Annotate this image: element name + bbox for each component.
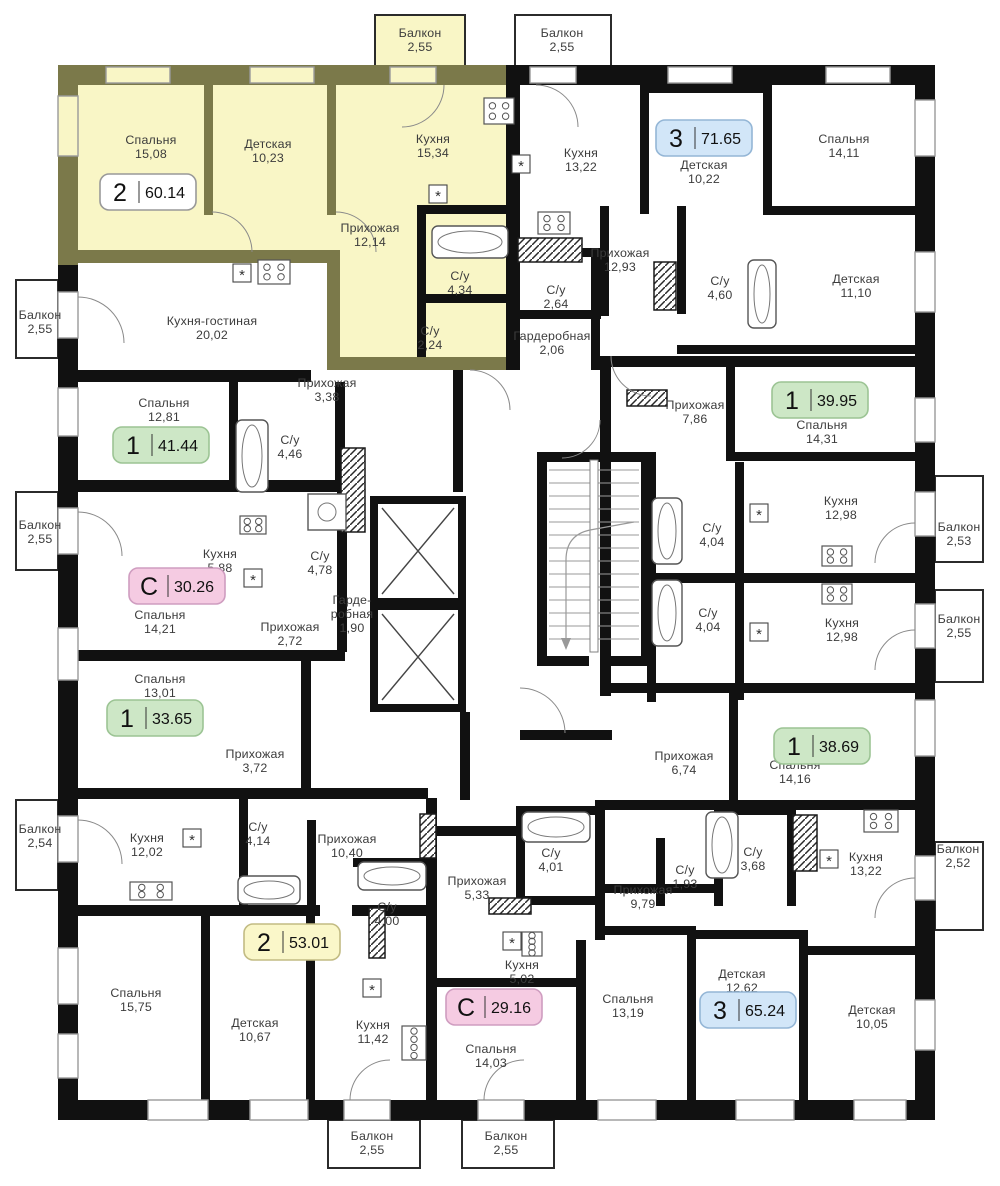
bathtub-icon: [236, 420, 268, 492]
window: [58, 948, 78, 1004]
stove-icon: [864, 810, 898, 832]
window: [106, 67, 170, 83]
door-arc: [350, 1060, 390, 1100]
interior-wall: [517, 310, 601, 319]
room-label: Спальня12,81: [138, 396, 189, 424]
stair-stringer: [590, 460, 598, 652]
washer-spot-icon: *: [369, 982, 375, 999]
interior-wall: [591, 248, 600, 370]
apartment-rooms-count: 1: [126, 432, 140, 460]
window: [915, 492, 935, 536]
interior-wall: [537, 656, 589, 666]
room-label: С/у4,46: [278, 433, 303, 461]
interior-wall: [576, 940, 586, 1102]
apartment-badge-1-39.95[interactable]: 139.95: [772, 382, 868, 418]
highlight-fill: [58, 65, 520, 370]
room-label: Гардеробная2,06: [513, 329, 590, 357]
apartment-badge-3-71.65[interactable]: 371.65: [656, 120, 752, 156]
interior-wall: [436, 826, 520, 836]
room-label: Детская12,62: [718, 967, 765, 995]
apartment-area: 39.95: [817, 393, 857, 410]
interior-wall: [460, 712, 470, 800]
apartment-rooms-count: С: [457, 994, 475, 1022]
washer-spot-icon: *: [518, 158, 524, 175]
apartment-area: 41.44: [158, 438, 198, 455]
door-arc: [78, 297, 124, 343]
room-label: Спальня14,31: [796, 418, 847, 446]
room-label: С/у2,24: [418, 324, 443, 352]
room-label: Прихожая3,72: [225, 747, 284, 775]
interior-wall: [677, 206, 686, 314]
room-label: Кухня12,98: [824, 494, 858, 522]
shaft-hatch: [518, 238, 582, 262]
window: [148, 1100, 208, 1120]
room-label: Спальня13,19: [602, 992, 653, 1020]
room-label: Спальня14,03: [465, 1042, 516, 1070]
interior-wall: [640, 84, 649, 214]
apartment-area: 53.01: [289, 935, 329, 952]
stove-icon: [240, 516, 266, 534]
room-label: Кухня12,02: [130, 831, 164, 859]
room-label: Спальня15,75: [110, 986, 161, 1014]
room-label: С/у4,00: [375, 900, 400, 928]
shaft-hatch: [420, 814, 436, 858]
window: [915, 604, 935, 648]
apartment-area: 38.69: [819, 739, 859, 756]
room-label: С/у4,01: [539, 846, 564, 874]
door-arc: [520, 688, 565, 733]
window: [478, 1100, 524, 1120]
highlight-wall: [327, 250, 340, 370]
room-label: С/у2,64: [544, 283, 569, 311]
interior-wall: [696, 930, 806, 939]
room-label: Прихожая10,40: [317, 832, 376, 860]
room-label: С/у1,93: [673, 863, 698, 891]
interior-wall: [600, 683, 917, 693]
interior-wall: [604, 656, 651, 666]
window: [915, 1000, 935, 1050]
interior-wall: [436, 978, 577, 987]
stove-icon: [822, 546, 852, 566]
door-arc: [875, 630, 915, 670]
room-label: Кухня15,34: [416, 132, 450, 160]
room-label: Кухня11,42: [356, 1018, 390, 1046]
interior-wall: [417, 205, 520, 214]
shaft-hatch: [489, 898, 531, 914]
washer-spot-icon: *: [509, 935, 515, 952]
room-label: Детская10,22: [680, 158, 727, 186]
window: [58, 628, 78, 680]
room-label: Детская10,67: [231, 1016, 278, 1044]
window: [58, 1034, 78, 1078]
stove-icon: [538, 212, 570, 234]
room-label: С/у4,78: [308, 549, 333, 577]
interior-wall: [806, 946, 917, 955]
room-label: С/у4,60: [708, 274, 733, 302]
window: [250, 67, 314, 83]
interior-wall: [307, 820, 316, 906]
washer-spot-icon: *: [239, 267, 245, 284]
window: [854, 1100, 906, 1120]
apartment-rooms-count: 3: [713, 997, 727, 1025]
room-label: Прихожая3,38: [297, 376, 356, 404]
interior-wall: [595, 800, 605, 940]
apartment-area: 33.65: [152, 711, 192, 728]
window: [390, 67, 436, 83]
room-label: С/у4,34: [448, 269, 473, 297]
interior-wall: [799, 930, 808, 1102]
room-label: Прихожая6,74: [654, 749, 713, 777]
washer-spot-icon: *: [826, 853, 832, 870]
washer-spot-icon: *: [435, 188, 441, 205]
apartment-badge-1-41.44[interactable]: 141.44: [113, 427, 209, 463]
washer-spot-icon: *: [756, 507, 762, 524]
interior-wall: [650, 573, 917, 583]
window: [915, 100, 935, 156]
highlight-wall: [58, 65, 78, 265]
interior-wall: [729, 690, 738, 805]
interior-wall: [537, 452, 547, 666]
bathtub-icon: [358, 862, 426, 890]
washer-spot-icon: *: [189, 832, 195, 849]
room-label: Прихожая7,86: [665, 398, 724, 426]
window: [668, 67, 732, 83]
interior-wall: [58, 905, 320, 916]
room-label: Спальня14,21: [134, 608, 185, 636]
highlight-wall: [204, 65, 213, 215]
interior-wall: [640, 84, 772, 93]
interior-wall: [600, 356, 917, 367]
stove-icon: [484, 98, 514, 124]
interior-wall: [201, 916, 210, 1102]
window: [250, 1100, 308, 1120]
window: [736, 1100, 794, 1120]
stove-icon: [822, 584, 852, 604]
interior-wall: [600, 926, 696, 935]
interior-wall: [726, 452, 917, 461]
apartment-badge-1-33.65[interactable]: 133.65: [107, 700, 203, 736]
apartment-area: 65.24: [745, 1003, 785, 1020]
room-label: С/у3,68: [741, 845, 766, 873]
room-label: Кухня-гостиная20,02: [167, 314, 257, 342]
washer-spot-icon: *: [250, 572, 256, 589]
interior-wall: [58, 788, 428, 799]
room-label: Кухня13,22: [564, 146, 598, 174]
room-label: С/у4,14: [246, 820, 271, 848]
highlighted-apartment-fill: [58, 65, 520, 370]
apartment-badge-2-53.01[interactable]: 253.01: [244, 924, 340, 960]
door-arc: [78, 820, 122, 864]
window: [530, 67, 576, 83]
bathtub-icon: [748, 260, 776, 328]
interior-wall: [520, 730, 612, 740]
window: [598, 1100, 656, 1120]
interior-wall: [58, 480, 341, 492]
floor-plan: ********** Спальня15,08Детская10,23Кухня…: [0, 0, 1000, 1186]
apartment-area: 60.14: [145, 185, 185, 202]
door-arc: [875, 878, 915, 918]
stair-arrow-head: [561, 638, 571, 650]
bathtub-icon: [652, 498, 682, 564]
apartment-area: 29.16: [491, 1000, 531, 1017]
window: [344, 1100, 390, 1120]
interior-wall: [677, 345, 917, 354]
interior-wall: [687, 926, 696, 1102]
window: [58, 96, 78, 156]
apartment-rooms-count: 1: [120, 705, 134, 733]
stove-icon: [402, 1026, 426, 1060]
bathtub-icon: [238, 876, 300, 904]
room-label: Детская11,10: [832, 272, 879, 300]
door-arc: [470, 370, 510, 410]
balcony-box: [935, 476, 983, 562]
interior-wall: [763, 84, 772, 214]
apartment-rooms-count: С: [140, 573, 158, 601]
apartment-rooms-count: 3: [669, 125, 683, 153]
apartment-badge-С-29.16[interactable]: С29.16: [446, 989, 542, 1025]
apartment-rooms-count: 2: [113, 179, 127, 207]
floor-plan-svg: ********** Спальня15,08Детская10,23Кухня…: [0, 0, 1000, 1186]
room-label: Кухня5,02: [505, 958, 539, 986]
highlight-wall: [327, 357, 520, 370]
apartment-badge-С-30.26[interactable]: С30.26: [129, 568, 225, 604]
interior-wall: [726, 367, 735, 461]
room-label: Детская10,05: [848, 1003, 895, 1031]
window: [915, 700, 935, 756]
apartment-badge-1-38.69[interactable]: 138.69: [774, 728, 870, 764]
interior-wall: [453, 370, 463, 492]
room-label: С/у4,04: [700, 521, 725, 549]
room-label: Кухня13,22: [849, 850, 883, 878]
window: [826, 67, 890, 83]
door-arc: [536, 85, 578, 127]
highlight-wall: [58, 250, 340, 263]
washer-spot-icon: *: [756, 626, 762, 643]
interior-wall: [58, 370, 311, 382]
interior-wall: [301, 650, 311, 790]
shaft-hatch: [793, 815, 817, 871]
bathtub-icon: [706, 812, 738, 878]
room-label: Кухня12,98: [825, 616, 859, 644]
shaft-hatch: [654, 262, 676, 310]
room-label: Спальня13,01: [134, 672, 185, 700]
outer-wall: [915, 65, 935, 1120]
apartment-rooms-count: 1: [787, 733, 801, 761]
apartment-rooms-count: 2: [257, 929, 271, 957]
shower-icon: [308, 494, 346, 530]
door-arc: [875, 523, 915, 563]
apartment-area: 71.65: [701, 131, 741, 148]
interior-wall: [641, 452, 651, 666]
apartment-badge-2-60.14[interactable]: 260.14: [100, 174, 196, 210]
window: [58, 388, 78, 436]
window: [915, 398, 935, 442]
apartment-rooms-count: 1: [785, 387, 799, 415]
stove-icon: [130, 882, 172, 900]
elevators-and-staircase: [374, 460, 639, 708]
room-label: Спальня14,11: [818, 132, 869, 160]
highlight-wall: [327, 65, 336, 215]
stove-icon: [258, 260, 290, 284]
room-label: Прихожая2,72: [260, 620, 319, 648]
window: [915, 856, 935, 900]
interior-wall: [763, 206, 917, 215]
apartment-area: 30.26: [174, 579, 214, 596]
apartment-badge-3-65.24[interactable]: 365.24: [700, 992, 796, 1028]
window: [915, 252, 935, 312]
room-label: С/у4,04: [696, 606, 721, 634]
door-arc: [78, 512, 122, 556]
bathtub-icon: [652, 580, 682, 646]
